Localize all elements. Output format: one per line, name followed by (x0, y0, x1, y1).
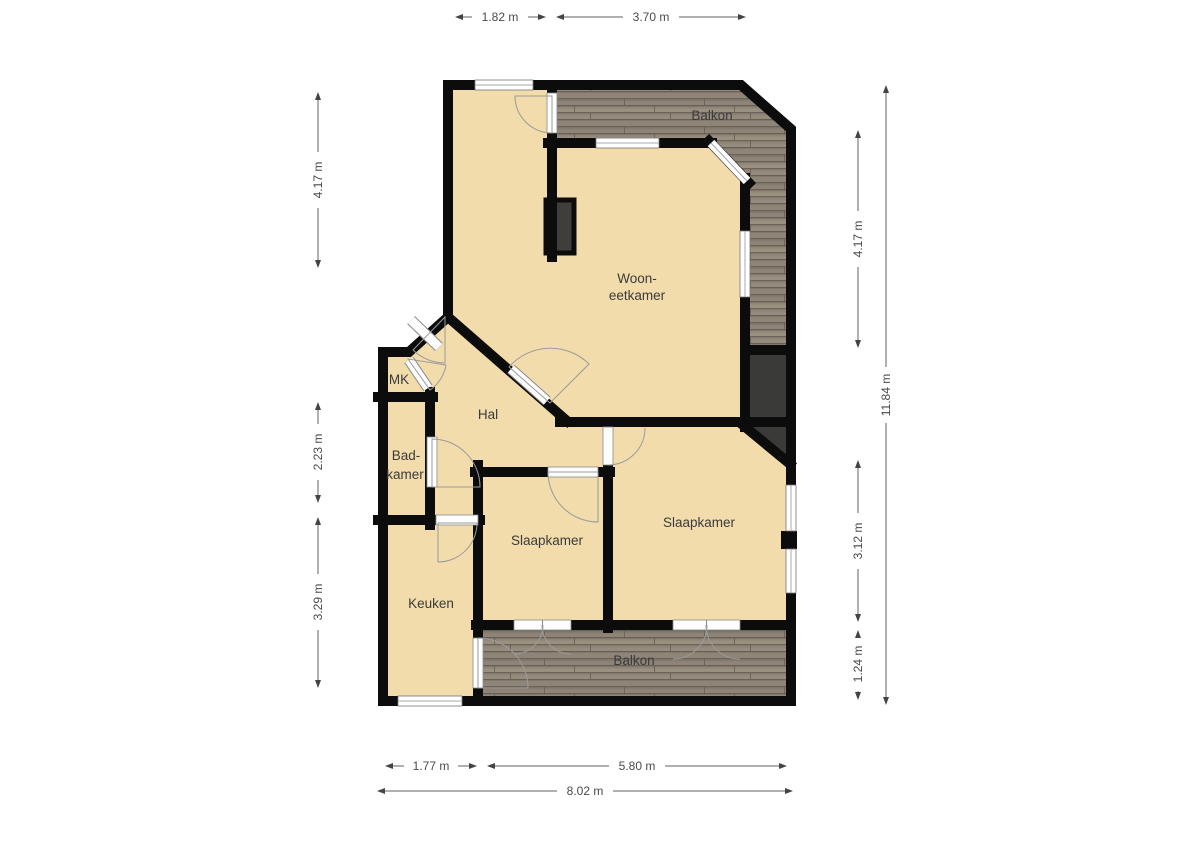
dim-text-top-2: 3.70 m (633, 10, 670, 24)
floorplan-canvas: Balkon Woon- eetkamer MK Hal Bad- kamer … (0, 0, 1200, 848)
dim-text-left-3: 3.29 m (311, 584, 325, 621)
room-label-mk: MK (389, 372, 409, 387)
window-woonkamer-top (596, 138, 659, 148)
dim-text-bottom-1: 1.77 m (413, 759, 450, 773)
window-woonkamer-right (740, 231, 750, 297)
room-label-slaapkamer-mid: Slaapkamer (511, 533, 584, 548)
dim-text-bottom-total: 8.02 m (567, 784, 604, 798)
dim-text-right-2: 3.12 m (851, 523, 865, 560)
window-slaapkamer-right-2 (786, 549, 796, 593)
room-label-slaapkamer-right: Slaapkamer (663, 515, 736, 530)
floorplan-drawing: Balkon Woon- eetkamer MK Hal Bad- kamer … (0, 0, 1200, 848)
dim-text-bottom-2: 5.80 m (619, 759, 656, 773)
dim-text-right-3: 1.24 m (851, 646, 865, 683)
dim-text-left-2: 2.23 m (311, 434, 325, 471)
dim-text-right-1: 4.17 m (851, 221, 865, 258)
room-label-badkamer-line1: Bad- (392, 448, 421, 463)
dim-text-left-1: 4.17 m (311, 162, 325, 199)
room-label-balkon-bottom: Balkon (613, 653, 654, 668)
room-label-badkamer-line2: kamer (386, 467, 424, 482)
room-label-hal: Hal (478, 407, 498, 422)
wall-window-pier (781, 531, 797, 549)
window-top-left (475, 80, 533, 90)
room-label-keuken: Keuken (408, 596, 454, 611)
dim-text-right-total: 11.84 m (879, 374, 893, 416)
window-slaapkamer-right-1 (786, 485, 796, 531)
room-label-woonkamer-line2: eetkamer (609, 288, 666, 303)
room-label-balkon-top: Balkon (691, 108, 732, 123)
room-label-woonkamer-line1: Woon- (617, 271, 657, 286)
window-keuken-bottom (398, 696, 462, 706)
dim-text-top-1: 1.82 m (482, 10, 519, 24)
